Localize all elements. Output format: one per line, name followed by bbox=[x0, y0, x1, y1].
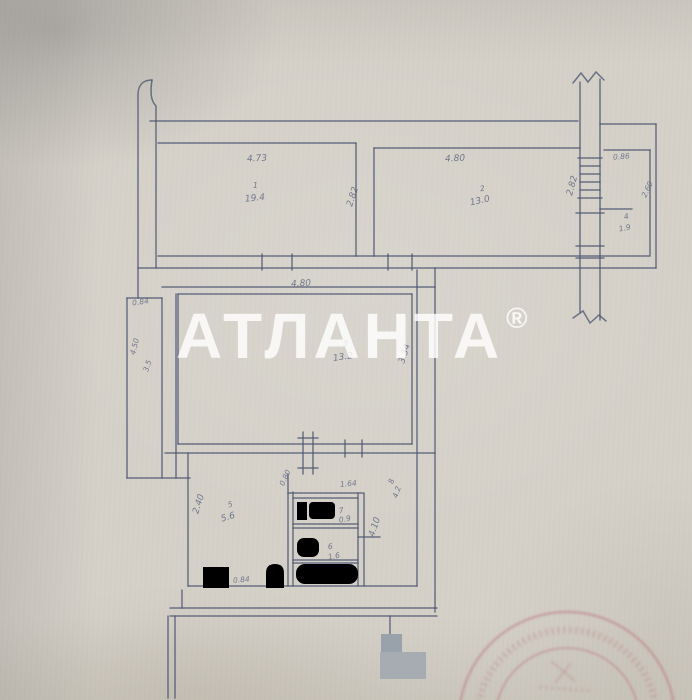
kitchen-number: 5 bbox=[227, 499, 234, 509]
kitchen-height-dim: 2.40 bbox=[191, 493, 207, 515]
kitchen-door bbox=[266, 564, 284, 588]
floor-plan-document: 4.73 1 19.4 2.82 4.80 2 13.0 2.82 0.86 2… bbox=[0, 0, 692, 700]
toilet-number: 6 bbox=[327, 542, 333, 552]
outer-walls bbox=[138, 80, 656, 298]
balcony-width-dim: 0.84 bbox=[132, 296, 150, 307]
washroom-side-dim: 0.80 bbox=[278, 468, 293, 487]
toilet-fixture bbox=[297, 538, 319, 557]
window-room1 bbox=[138, 168, 156, 208]
washroom-area: 0.9 bbox=[338, 514, 352, 525]
redaction-block bbox=[380, 652, 426, 679]
room3-width-dim: 4.80 bbox=[291, 279, 312, 290]
balcony-area: 3.5 bbox=[141, 359, 153, 373]
room1-width-dim: 4.73 bbox=[247, 154, 268, 165]
vent-stack bbox=[573, 72, 632, 323]
room1-2-wall-dim: 2.82 bbox=[345, 186, 361, 208]
room2-width-dim: 4.80 bbox=[445, 154, 466, 165]
kitchen-area: 5.6 bbox=[220, 511, 237, 525]
bathtub-fixture bbox=[296, 564, 358, 584]
interior-walls-top bbox=[262, 143, 412, 270]
room4-number: 4 bbox=[623, 212, 629, 222]
room4-height-dim: 2.60 bbox=[640, 180, 655, 199]
vent-wall-dim: 2.82 bbox=[565, 175, 580, 197]
balcony-height-dim: 4.50 bbox=[128, 337, 141, 356]
washroom-width-dim: 1.64 bbox=[340, 478, 358, 488]
agency-watermark: АТЛАНТА® bbox=[176, 303, 528, 370]
watermark-text: АТЛАНТА bbox=[176, 300, 503, 372]
sink-fixture bbox=[297, 502, 335, 520]
stove-fixture bbox=[203, 567, 229, 588]
room1-area: 19.4 bbox=[245, 193, 266, 205]
entrance-threshold-hatch bbox=[374, 589, 395, 607]
room1-number: 1 bbox=[253, 181, 258, 190]
round-seal-stamp bbox=[443, 583, 692, 700]
registered-trademark-icon: ® bbox=[506, 304, 527, 334]
redaction-block bbox=[381, 634, 402, 654]
hallway-number: 8 bbox=[386, 477, 396, 485]
room2-number: 2 bbox=[479, 183, 486, 193]
stove-dim: 0.84 bbox=[233, 574, 251, 584]
hallway-area: 4.2 bbox=[391, 485, 403, 499]
hallway-height-dim: 4.10 bbox=[367, 516, 383, 538]
room4-area: 1.9 bbox=[618, 223, 632, 234]
window-balcony bbox=[162, 343, 176, 396]
room2-area: 13.0 bbox=[469, 194, 491, 208]
room4-width-dim: 0.86 bbox=[613, 151, 631, 161]
